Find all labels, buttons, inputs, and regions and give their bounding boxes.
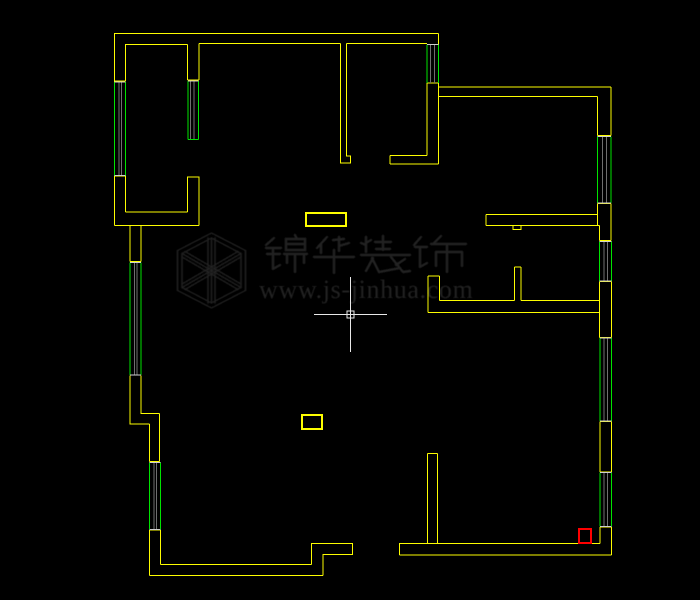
svg-text:www.js-jinhua.com: www.js-jinhua.com [259,275,473,304]
